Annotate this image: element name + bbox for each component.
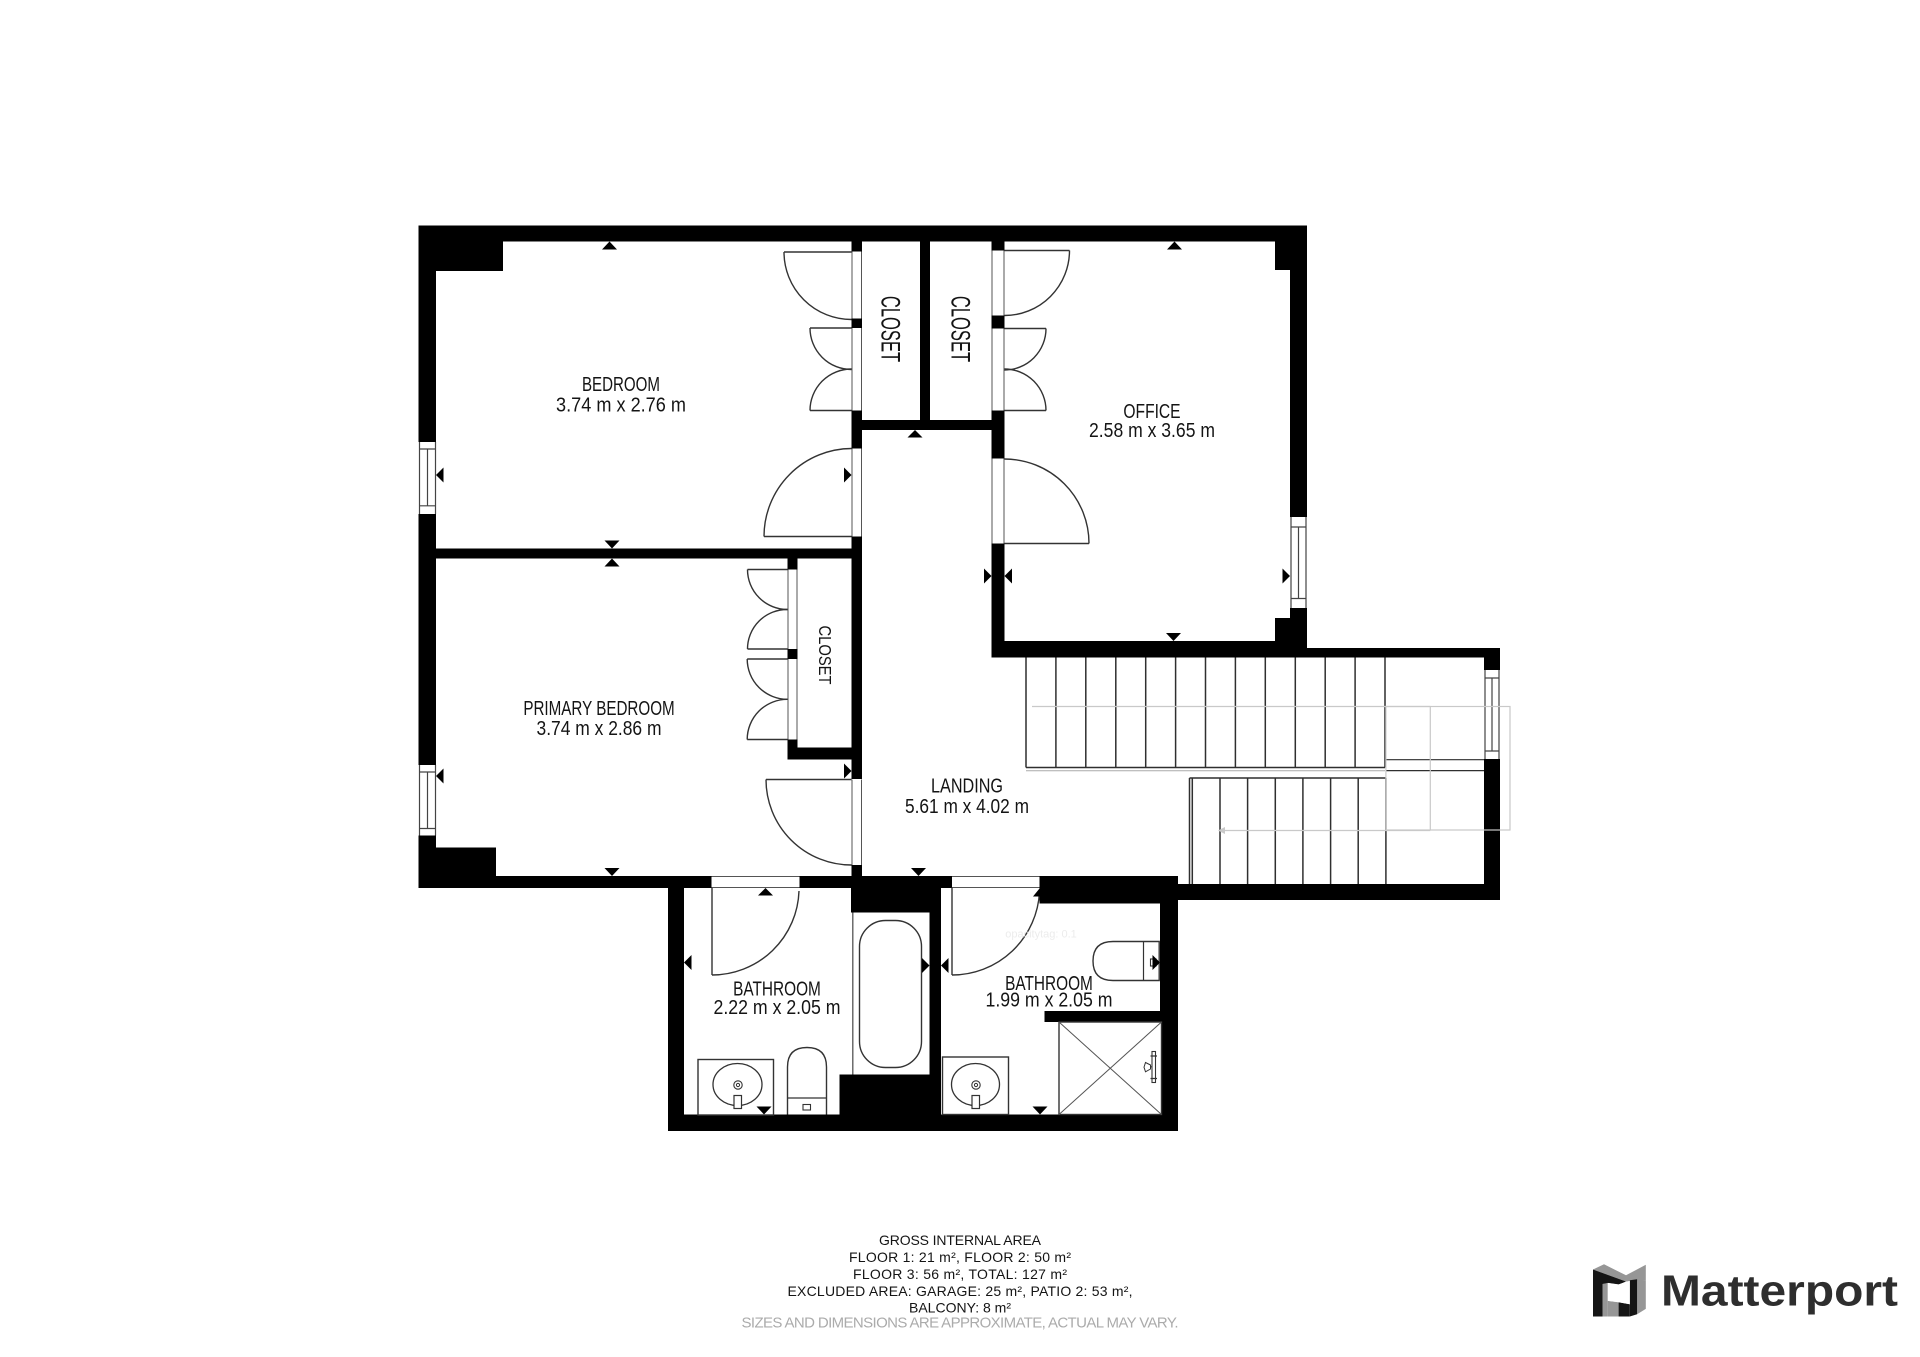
svg-text:CLOSET: CLOSET xyxy=(875,296,905,363)
svg-text:CLOSET: CLOSET xyxy=(945,296,975,363)
svg-text:FLOOR 3: 56 m², TOTAL: 127 m²: FLOOR 3: 56 m², TOTAL: 127 m² xyxy=(853,1266,1067,1282)
svg-text:1.99 m x 2.05 m: 1.99 m x 2.05 m xyxy=(986,990,1113,1012)
svg-text:GROSS INTERNAL AREA: GROSS INTERNAL AREA xyxy=(879,1232,1042,1248)
svg-text:BEDROOM: BEDROOM xyxy=(582,373,660,396)
svg-text:3.74 m x 2.76 m: 3.74 m x 2.76 m xyxy=(556,395,686,417)
svg-text:FLOOR 1: 21 m², FLOOR 2: 50 m²: FLOOR 1: 21 m², FLOOR 2: 50 m² xyxy=(849,1249,1071,1265)
svg-text:3.74 m x 2.86 m: 3.74 m x 2.86 m xyxy=(537,717,662,739)
svg-text:2.58 m x 3.65 m: 2.58 m x 3.65 m xyxy=(1089,419,1215,441)
svg-text:Matterport: Matterport xyxy=(1661,1267,1898,1316)
svg-text:BALCONY: 8 m²: BALCONY: 8 m² xyxy=(909,1300,1011,1316)
svg-text:opacitytag: 0.1: opacitytag: 0.1 xyxy=(1005,929,1077,941)
svg-text:2.22 m x 2.05 m: 2.22 m x 2.05 m xyxy=(714,997,841,1019)
svg-text:5.61 m x 4.02 m: 5.61 m x 4.02 m xyxy=(905,795,1029,817)
svg-text:SIZES AND DIMENSIONS ARE APPRO: SIZES AND DIMENSIONS ARE APPROXIMATE, AC… xyxy=(742,1315,1179,1332)
svg-text:LANDING: LANDING xyxy=(931,775,1003,797)
svg-text:CLOSET: CLOSET xyxy=(815,626,835,685)
svg-text:EXCLUDED AREA: GARAGE: 25 m²,: EXCLUDED AREA: GARAGE: 25 m², PATIO 2: 5… xyxy=(788,1283,1133,1299)
